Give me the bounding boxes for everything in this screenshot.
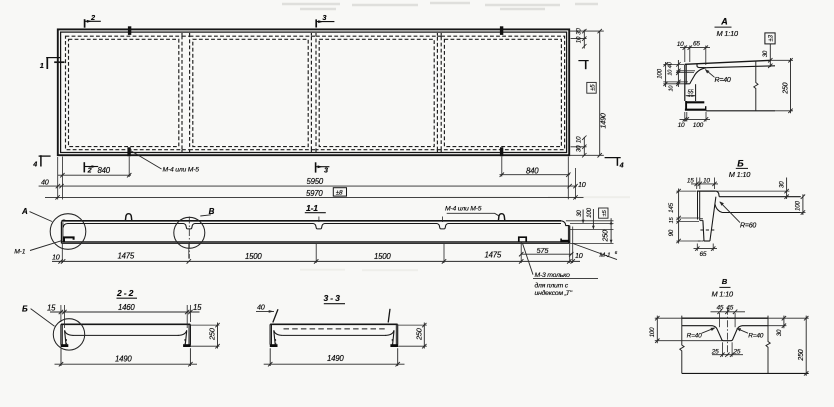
svg-text:3: 3 bbox=[322, 13, 327, 22]
svg-text:±5: ±5 bbox=[590, 84, 596, 91]
svg-text:2: 2 bbox=[87, 165, 92, 174]
svg-text:30: 30 bbox=[576, 28, 583, 35]
svg-text:250: 250 bbox=[783, 82, 790, 94]
svg-text:1500: 1500 bbox=[245, 252, 262, 261]
svg-text:575: 575 bbox=[537, 246, 550, 255]
svg-text:145: 145 bbox=[668, 202, 675, 212]
svg-text:Б: Б bbox=[22, 305, 28, 314]
svg-text:1475: 1475 bbox=[485, 251, 502, 260]
svg-text:30: 30 bbox=[762, 50, 769, 57]
svg-text:±5: ±5 bbox=[602, 209, 608, 216]
svg-text:±8: ±8 bbox=[336, 190, 343, 197]
svg-text:5950: 5950 bbox=[307, 177, 324, 186]
svg-text:М-4 или М-5: М-4 или М-5 bbox=[445, 205, 482, 212]
svg-text:2 - 2: 2 - 2 bbox=[116, 288, 134, 298]
svg-text:индексом „Т": индексом „Т" bbox=[535, 289, 573, 297]
svg-text:Б: Б bbox=[737, 159, 744, 169]
svg-text:30: 30 bbox=[576, 210, 583, 217]
svg-text:25: 25 bbox=[711, 348, 719, 355]
svg-text:100: 100 bbox=[795, 201, 802, 211]
svg-text:15: 15 bbox=[669, 216, 675, 223]
svg-text:30: 30 bbox=[576, 145, 583, 152]
svg-text:1490: 1490 bbox=[599, 113, 608, 128]
svg-text:1500: 1500 bbox=[374, 252, 391, 261]
svg-text:840: 840 bbox=[526, 166, 539, 175]
svg-text:10: 10 bbox=[578, 180, 586, 189]
svg-text:45: 45 bbox=[726, 305, 733, 312]
svg-text:5970: 5970 bbox=[306, 189, 323, 198]
svg-text:90: 90 bbox=[668, 229, 675, 236]
svg-text:R=40: R=40 bbox=[687, 332, 703, 339]
svg-text:А: А bbox=[21, 207, 28, 216]
svg-text:1: 1 bbox=[40, 61, 44, 70]
svg-text:250: 250 bbox=[601, 230, 610, 243]
svg-text:4: 4 bbox=[32, 159, 37, 168]
svg-text:R=40: R=40 bbox=[715, 77, 731, 84]
svg-text:100: 100 bbox=[586, 207, 593, 217]
svg-text:1490: 1490 bbox=[327, 354, 344, 363]
svg-text:10: 10 bbox=[575, 251, 583, 260]
svg-text:250: 250 bbox=[208, 327, 217, 341]
svg-text:А: А bbox=[720, 17, 727, 27]
svg-text:1-1: 1-1 bbox=[306, 203, 318, 213]
svg-text:30: 30 bbox=[776, 329, 783, 336]
svg-text:40: 40 bbox=[257, 303, 265, 312]
svg-text:65: 65 bbox=[700, 251, 707, 258]
svg-text:10: 10 bbox=[669, 85, 675, 92]
svg-text:25: 25 bbox=[733, 348, 741, 355]
svg-text:40: 40 bbox=[41, 177, 49, 186]
svg-text:±3: ±3 bbox=[769, 34, 775, 41]
svg-text:10: 10 bbox=[703, 177, 710, 184]
svg-text:В: В bbox=[722, 277, 728, 286]
svg-text:3: 3 bbox=[324, 166, 328, 175]
svg-text:10: 10 bbox=[576, 36, 583, 43]
svg-text:15: 15 bbox=[47, 304, 56, 313]
svg-text:10: 10 bbox=[576, 136, 583, 143]
svg-text:250: 250 bbox=[798, 349, 805, 361]
svg-text:10: 10 bbox=[678, 122, 685, 129]
svg-text:4: 4 bbox=[619, 161, 624, 170]
svg-text:6: 6 bbox=[615, 250, 618, 256]
svg-text:10: 10 bbox=[52, 253, 60, 262]
svg-text:15: 15 bbox=[193, 303, 202, 312]
svg-text:10: 10 bbox=[677, 41, 684, 48]
svg-text:М 1:10: М 1:10 bbox=[712, 289, 734, 298]
svg-text:R=60: R=60 bbox=[740, 223, 756, 230]
svg-text:100: 100 bbox=[693, 122, 704, 129]
svg-text:15: 15 bbox=[687, 177, 694, 184]
svg-text:100: 100 bbox=[656, 68, 663, 78]
svg-text:40: 40 bbox=[668, 61, 674, 68]
svg-text:М 1:10: М 1:10 bbox=[717, 29, 739, 38]
svg-text:100: 100 bbox=[649, 327, 656, 337]
svg-text:М-3 только: М-3 только bbox=[535, 272, 571, 279]
svg-text:М-1: М-1 bbox=[14, 249, 26, 256]
svg-text:R=40: R=40 bbox=[748, 332, 764, 339]
svg-text:840: 840 bbox=[98, 166, 111, 175]
svg-text:65: 65 bbox=[693, 41, 700, 48]
svg-text:10: 10 bbox=[668, 69, 674, 76]
svg-text:для плит с: для плит с bbox=[535, 281, 569, 289]
svg-text:30: 30 bbox=[778, 181, 785, 188]
svg-text:250: 250 bbox=[414, 327, 423, 341]
svg-text:1490: 1490 bbox=[115, 355, 132, 364]
svg-text:М-4 или М-5: М-4 или М-5 bbox=[163, 166, 200, 173]
svg-text:М 1:10: М 1:10 bbox=[729, 170, 751, 179]
svg-text:1475: 1475 bbox=[118, 252, 135, 261]
svg-text:1460: 1460 bbox=[118, 303, 135, 312]
svg-text:3 - 3: 3 - 3 bbox=[324, 293, 341, 303]
svg-text:55: 55 bbox=[688, 89, 695, 95]
svg-text:45: 45 bbox=[717, 305, 724, 312]
